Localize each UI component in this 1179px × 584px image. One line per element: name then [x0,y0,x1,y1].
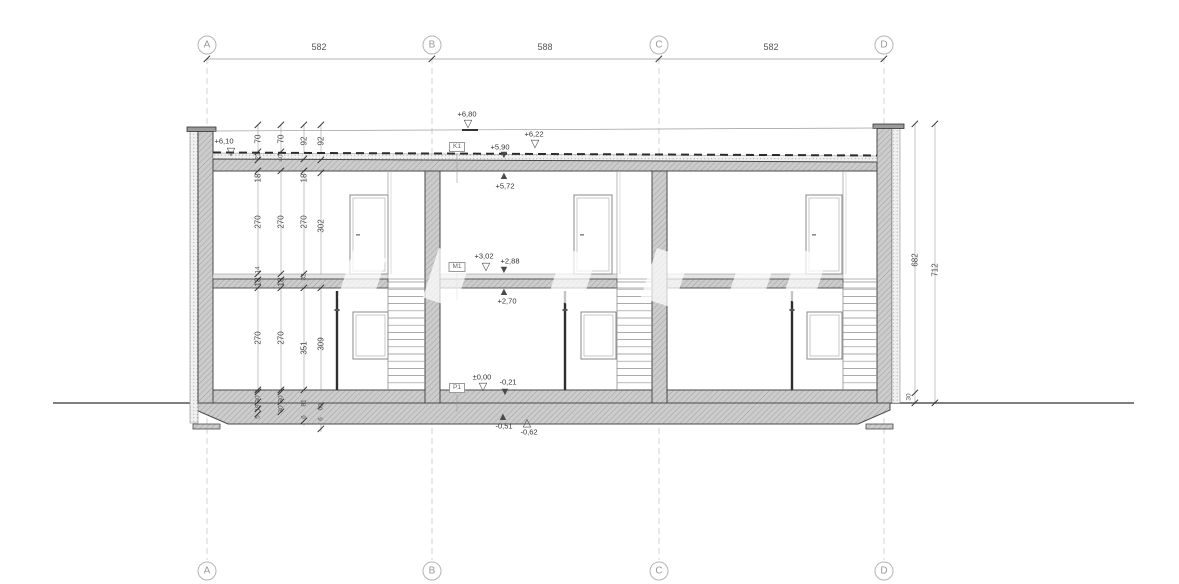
grid-span-dimension: 582 [761,42,780,52]
dimension-tick [317,169,324,176]
level-marker-value: +6,10 [215,137,234,146]
grid-bubble-top-c: C [650,36,669,55]
level-marker-value: +2,88 [501,257,520,266]
dimension-label: 270 [254,331,263,344]
dimension-tick [880,55,887,62]
dimension-label: 92 [317,137,326,146]
level-marker-icon: ▽ [464,119,472,129]
dimension-tick [277,167,284,174]
dimension-tick [300,155,307,162]
level-marker-icon: ▲ [498,412,509,422]
dimension-label: 81 [301,399,308,406]
dimension-tick [655,55,662,62]
level-marker-icon: ▽ [482,262,490,272]
dimension-tick [317,425,324,432]
grid-bubble-top-b: B [423,36,442,55]
dimension-label: 682 [911,253,920,266]
dimension-label: 70 [277,135,286,144]
dimension-label: 351 [300,341,309,354]
level-marker-icon: ▽ [531,139,539,149]
dimension-tick [277,121,284,128]
dimension-tick [911,389,918,396]
section-drawing-sheet: AABBCCDD58258858270221827014182702301957… [0,0,1179,584]
level-marker-value: -0,21 [499,378,516,387]
level-marker-value: +3,02 [475,252,494,261]
grid-bubble-bottom-a: A [198,562,217,581]
level-marker-value: -0,62 [520,428,537,437]
dimension-tick [317,121,324,128]
dimension-tick [428,55,435,62]
dimension-tick [254,121,261,128]
level-marker-value: +6,22 [525,130,544,139]
level-marker-value: +2,70 [498,297,517,306]
grid-bubble-bottom-b: B [423,562,442,581]
level-marker-icon: ▼ [499,265,510,275]
dimension-tick [300,386,307,393]
grid-bubble-top-d: D [875,36,894,55]
dimension-tick [300,121,307,128]
dimension-label: 270 [277,331,286,344]
level-marker-icon: ▲ [499,171,510,181]
level-marker-icon: △ [523,418,531,428]
reference-tag-p1: P1 [449,383,465,393]
level-marker-value: +6,80 [458,110,477,119]
level-marker-icon: ▼ [499,150,510,160]
dimension-tick [203,55,210,62]
dimension-label: 70 [254,135,263,144]
dimension-label: 270 [277,215,286,228]
dimension-tick [931,399,938,406]
dimension-label: 6 [318,417,325,421]
level-marker-value: ±0,00 [473,373,492,382]
level-marker-value: +5,72 [496,182,515,191]
level-marker-icon: ▼ [500,387,511,397]
dimension-label: 270 [254,215,263,228]
grid-bubble-bottom-d: D [875,562,894,581]
level-marker-value: +5,90 [491,143,510,152]
level-marker-icon: ▲ [499,287,510,297]
dimension-label: 270 [300,215,309,228]
dimension-label: 302 [317,219,326,232]
grid-bubble-bottom-c: C [650,562,669,581]
dimension-label: 40 [278,154,285,161]
reference-tag-m1: M1 [448,262,465,272]
grid-span-dimension: 582 [309,42,328,52]
dimension-tick [911,120,918,127]
reference-tag-k1: K1 [449,142,465,152]
dimension-tick [931,120,938,127]
level-marker-icon: ▽ [479,382,487,392]
level-marker-icon: ▽ [227,147,235,157]
grid-bubble-top-a: A [198,36,217,55]
dimension-label: 309 [317,337,326,350]
dimension-tick [300,284,307,291]
dimension-label: 712 [931,263,940,276]
dimension-label: 92 [300,137,309,146]
annotation-layer: AABBCCDD58258858270221827014182702301957… [0,0,1179,584]
level-marker-value: -0,51 [495,422,512,431]
dimension-tick [317,284,324,291]
dimension-tick [317,156,324,163]
grid-span-dimension: 588 [535,42,554,52]
